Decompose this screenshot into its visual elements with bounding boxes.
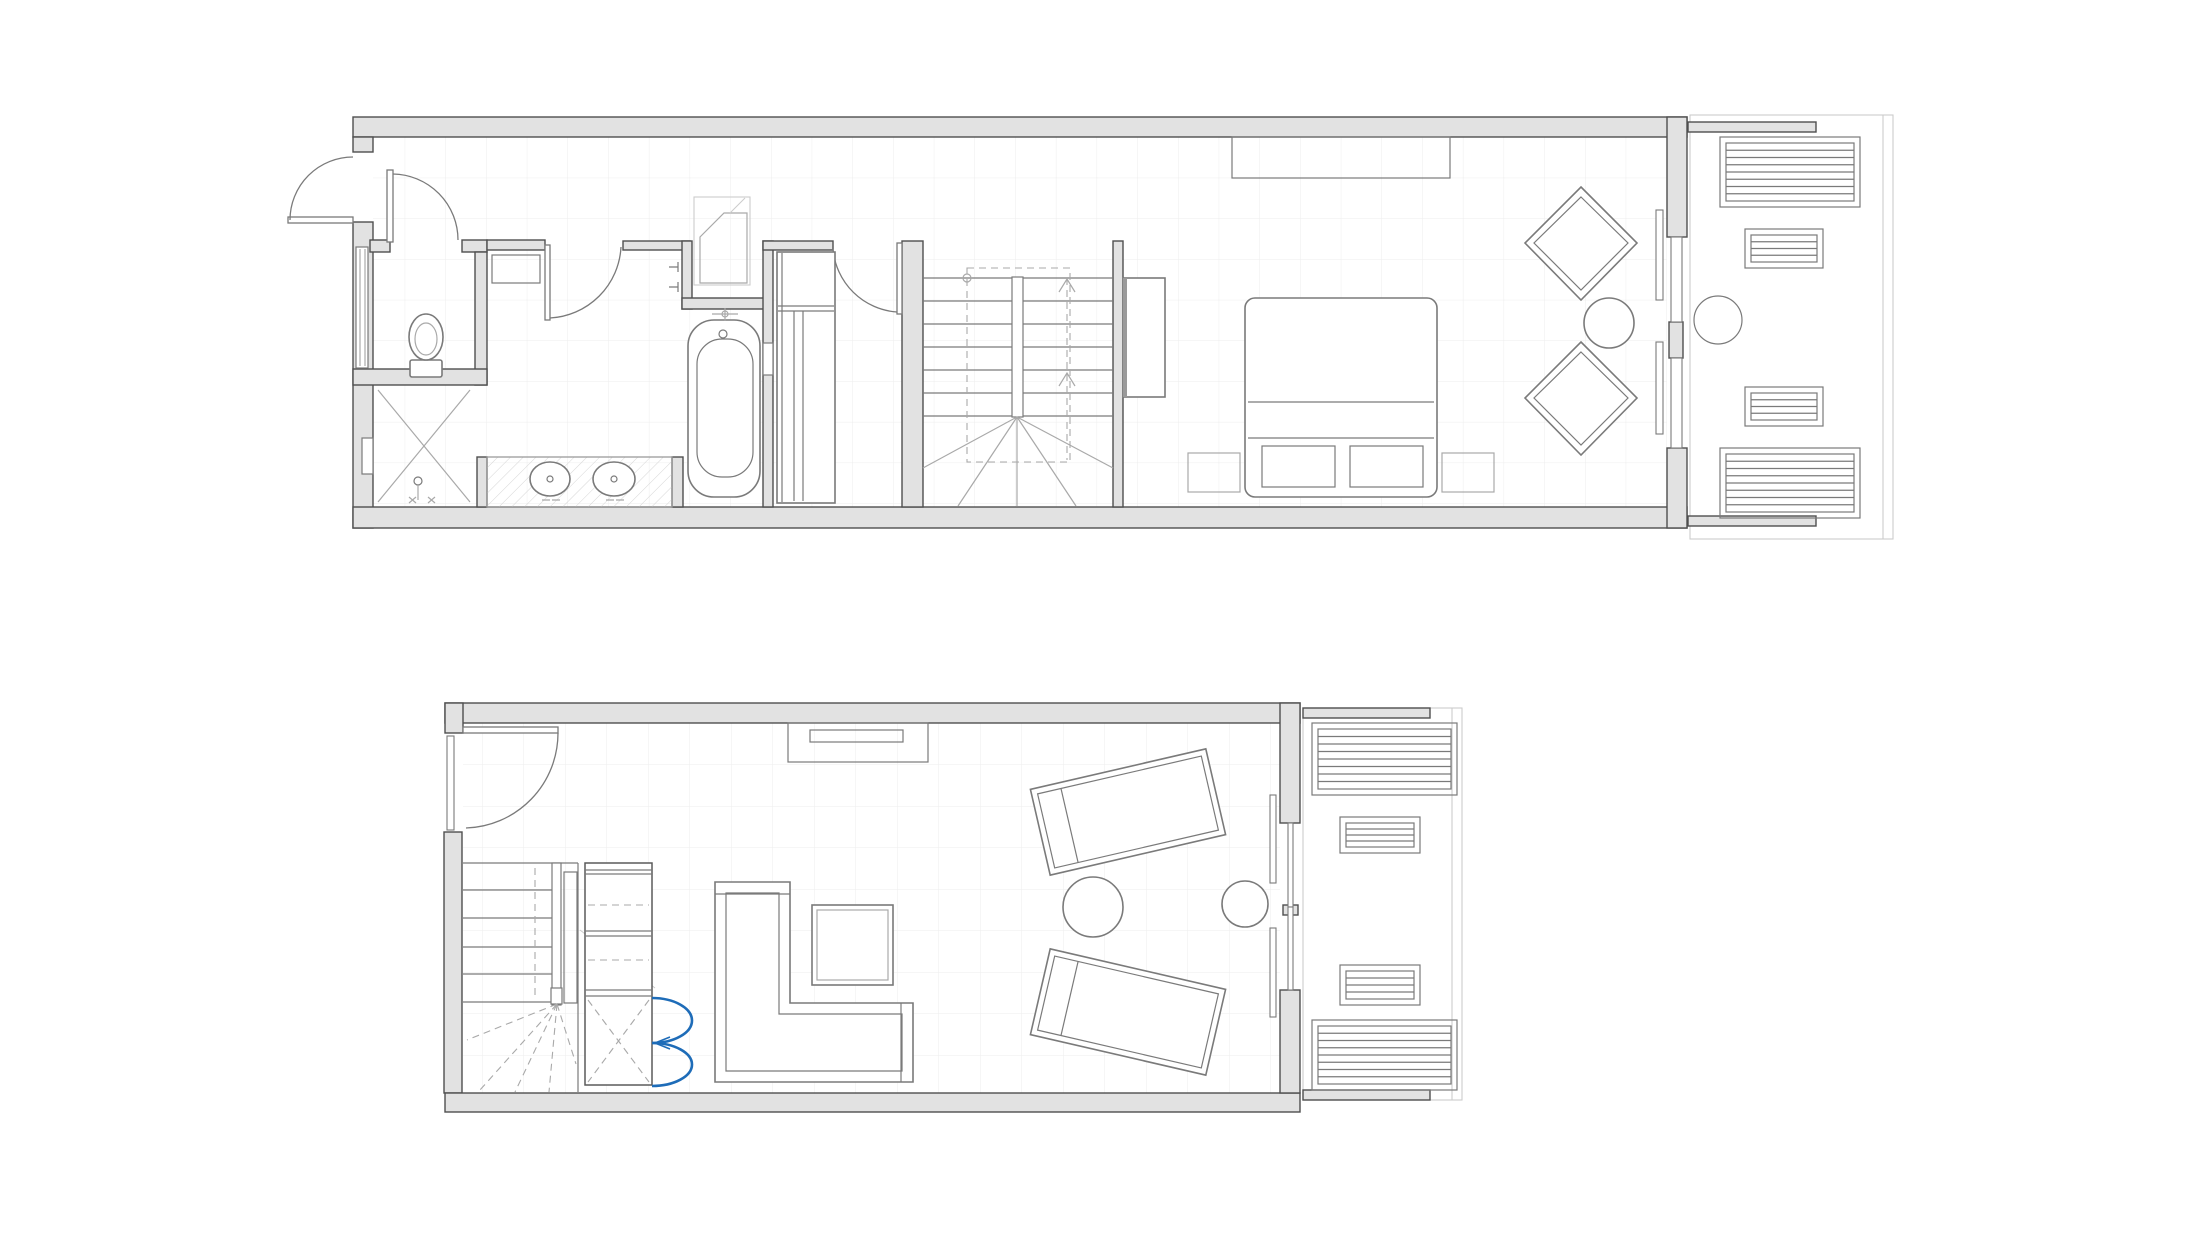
wall-left: [444, 832, 462, 1093]
terrace-furniture: [1312, 723, 1457, 1090]
vanity-end-left: [477, 457, 487, 507]
left-window-pane: [447, 736, 454, 830]
coffee-table: [812, 905, 893, 985]
wall-left-jamb: [353, 137, 373, 152]
lower-level-plan: [444, 703, 1462, 1112]
slat-ottoman: [1745, 229, 1823, 268]
wall-duct-chase: [356, 247, 368, 368]
sliding-pane: [1288, 907, 1293, 990]
stair-wall-left: [902, 241, 923, 507]
terrace-parapet-top: [1688, 122, 1816, 132]
wc-wall-right: [475, 252, 487, 385]
landing-door-leaf: [463, 727, 558, 733]
linen-cabinet: [777, 252, 835, 503]
wc-room: [409, 314, 443, 377]
sink-left: [530, 462, 570, 496]
slat-ottoman: [1745, 387, 1823, 426]
sliding-pane: [1671, 237, 1682, 322]
slat-ottoman: [1340, 965, 1420, 1005]
toilet-bowl: [409, 314, 443, 360]
wall-right-lower: [1280, 990, 1300, 1093]
vanity-end-right: [672, 457, 683, 507]
window-pane: [1270, 795, 1276, 883]
vanity-counter: [487, 457, 672, 507]
sink-right: [593, 462, 635, 496]
floor-plan-canvas: [0, 0, 2200, 1238]
terrace-parapet-bottom: [1303, 1090, 1430, 1100]
wall-right-pier: [1669, 322, 1683, 358]
wall-bottom: [445, 1093, 1300, 1112]
round-side-table: [1222, 881, 1268, 927]
stair-divider: [552, 863, 561, 1005]
floor-plan-page: [0, 0, 2200, 1238]
wc-door-leaf: [387, 170, 393, 242]
wall-right-upper: [1280, 703, 1300, 823]
wc-wall-b: [462, 240, 487, 252]
bath-door-leaf: [545, 245, 550, 320]
sun-lounger: [1312, 1020, 1457, 1090]
wall-right-upper: [1667, 117, 1687, 237]
slat-ottoman: [1340, 817, 1420, 853]
upper-level-plan: [288, 115, 1893, 539]
entry-door-leaf: [288, 217, 353, 223]
terrace-parapet-top: [1303, 708, 1430, 718]
window-pane: [1270, 928, 1276, 1017]
wall-bottom: [353, 507, 1687, 528]
stairhall-door-leaf: [897, 243, 902, 314]
sun-lounger: [1720, 448, 1860, 518]
wardrobe-back-strip: [1123, 278, 1127, 397]
niche-wall-bottom: [682, 298, 765, 309]
lower-terrace: [1303, 708, 1462, 1100]
closet-body: [585, 863, 652, 1085]
stair-divider: [1012, 277, 1023, 417]
entry-door-swing: [290, 157, 353, 220]
round-pouf: [1063, 877, 1123, 937]
bed: [1245, 298, 1437, 497]
shower-door-notch: [362, 438, 373, 474]
window-pane: [1656, 342, 1663, 434]
wall-top: [353, 117, 1687, 137]
sun-lounger: [1312, 723, 1457, 795]
tub-wall-panel: [763, 343, 773, 375]
stair-wall-right: [1113, 241, 1123, 507]
wall-top: [445, 703, 1300, 723]
bath-wall-a: [487, 240, 545, 250]
patio-round-table: [1694, 296, 1742, 344]
sliding-pane: [1288, 823, 1293, 907]
window-pane: [1656, 210, 1663, 300]
round-side-table: [1584, 298, 1634, 348]
sun-lounger: [1720, 137, 1860, 207]
sliding-pane: [1671, 358, 1682, 448]
upper-terrace: [1688, 115, 1893, 539]
bath-wall-c: [763, 241, 833, 250]
stair-newel: [551, 988, 562, 1004]
bathtub-outer: [688, 320, 760, 497]
toilet-tank: [410, 360, 442, 377]
wall-right-lower: [1667, 448, 1687, 528]
wall-left-jamb: [445, 703, 463, 733]
wardrobe: [1123, 278, 1165, 397]
bath-wall-b: [623, 241, 690, 250]
